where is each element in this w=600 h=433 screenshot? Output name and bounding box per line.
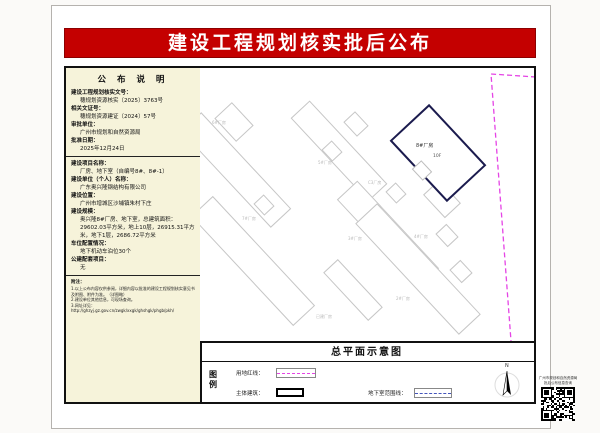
field-label: 建设位置： (71, 192, 195, 200)
field-label: 车位配置情况： (71, 240, 195, 248)
document-page: 建设工程规划核实批后公布 公 布 说 明 建设工程规划核实文号： 穗规划资源核实… (51, 5, 551, 429)
legend-label-building: 主体建筑： (236, 389, 264, 397)
field-value: 穗规划资源核实〔2025〕3763号 (71, 97, 195, 105)
field-label: 公建配套项目： (71, 256, 195, 264)
field-label: 建设单位（个人）名称： (71, 176, 195, 184)
legend-label-redline: 用地红线： (236, 369, 264, 377)
legend-title: 图例 (209, 370, 219, 390)
field-label: 建设规模： (71, 208, 195, 216)
land-boundary-line (200, 68, 534, 341)
field-value: 广东奥兴隆钢结构有限公司 (71, 184, 195, 192)
announcement-fields-2: 建设项目名称： 厂房、地下室（自编号8#、8#-1） 建设单位（个人）名称： 广… (66, 160, 200, 272)
field-label: 相关文证号： (71, 105, 195, 113)
field-value: 穗规划资源建证〔2024〕57号 (71, 113, 195, 121)
page-title: 建设工程规划核实批后公布 (64, 28, 536, 58)
announcement-fields-1: 建设工程规划核实文号： 穗规划资源核实〔2025〕3763号 相关文证号： 穗规… (66, 85, 200, 153)
footnote-line: 3.网址详见：http://ghzyj.gz.gov.cn/zwgk/xxgk/… (71, 303, 195, 314)
footnotes: 附注： 1.以上公布内容仅供参阅，详细内容以批准的建设工程规划核实意见书及附图、… (66, 279, 200, 315)
field-label: 审批单位： (71, 121, 195, 129)
north-arrow-icon: N (494, 364, 520, 402)
legend-label-basement: 地下室范围线： (368, 389, 407, 397)
plan-title: 总平面示意图 (200, 341, 534, 361)
legend-bar: 图例 用地红线： 主体建筑： 地下室范围线： N (200, 361, 534, 402)
field-label: 建设工程规划核实文号： (71, 89, 195, 97)
announcement-panel: 公 布 说 明 建设工程规划核实文号： 穗规划资源核实〔2025〕3763号 相… (66, 68, 202, 402)
field-value: 厂房、地下室（自编号8#、8#-1） (71, 168, 195, 176)
section-divider (66, 156, 200, 157)
content-frame: 公 布 说 明 建设工程规划核实文号： 穗规划资源核实〔2025〕3763号 相… (64, 66, 536, 404)
qr-block: 广州市规划和自然资源局 批后公布信息查询 (532, 376, 584, 421)
field-label: 建设项目名称： (71, 160, 195, 168)
field-value: 无 (71, 264, 195, 272)
field-value: 2025年12月24日 (71, 145, 195, 153)
qr-code (541, 387, 575, 421)
field-value: 地下机动车泊位30个 (71, 248, 195, 256)
field-value: 广州市规划和自然资源局 (71, 129, 195, 137)
section-divider (66, 275, 200, 276)
north-label: N (505, 363, 509, 369)
field-value: 奥兴隆8#厂房、地下室，总建筑面积：29602.03平方米，地上10层，2691… (71, 216, 195, 240)
footnote-line: 1.以上公布内容仅供参阅，详细内容以批准的建设工程规划核实意见书及附图、附件为准… (71, 286, 195, 297)
legend-sample-basement (414, 388, 452, 398)
site-plan-map: 8#厂房 10F 6#厂房 5#厂房 C3厂房 7#厂房 3#厂房 4#厂房 2… (200, 68, 534, 341)
field-label: 批准日期： (71, 137, 195, 145)
field-value: 广州市增城区沙埔镇朱村下庄 (71, 200, 195, 208)
qr-caption: 广州市规划和自然资源局 (532, 376, 584, 381)
legend-sample-building (276, 388, 304, 397)
qr-caption: 批后公布信息查询 (532, 381, 584, 386)
site-plan-panel: 8#厂房 10F 6#厂房 5#厂房 C3厂房 7#厂房 3#厂房 4#厂房 2… (200, 68, 534, 402)
announcement-header: 公 布 说 明 (66, 73, 200, 85)
legend-sample-redline (276, 368, 316, 378)
